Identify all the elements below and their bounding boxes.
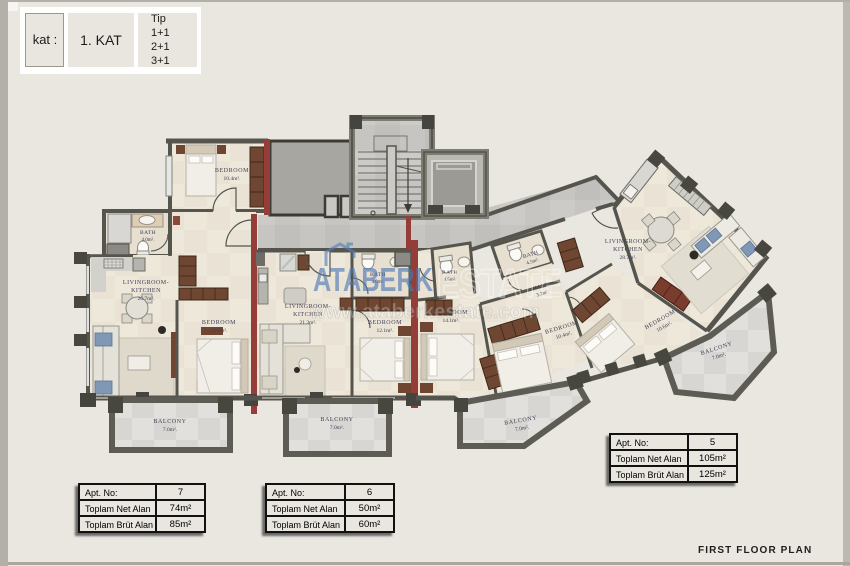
svg-text:BEDROOM: BEDROOM: [215, 168, 249, 174]
svg-text:26.7m².: 26.7m².: [138, 296, 156, 302]
svg-text:www.ataberkestate.com: www.ataberkestate.com: [309, 301, 540, 323]
svg-text:BATH: BATH: [140, 230, 156, 236]
svg-text:ATABERK: ATABERK: [313, 261, 433, 298]
svg-text:BALCONY: BALCONY: [320, 417, 353, 423]
svg-text:4.0m².: 4.0m².: [142, 237, 155, 243]
svg-text:KITCHEN: KITCHEN: [613, 247, 643, 253]
svg-text:BEDROOM: BEDROOM: [202, 320, 236, 326]
svg-text:ESTATE: ESTATE: [437, 262, 562, 306]
svg-text:10.4m².: 10.4m².: [224, 176, 242, 182]
svg-text:KITCHEN: KITCHEN: [131, 288, 161, 294]
svg-text:BALCONY: BALCONY: [153, 419, 186, 425]
svg-text:12.1m².: 12.1m².: [377, 328, 395, 334]
svg-text:LIVINGROOM-: LIVINGROOM-: [605, 239, 651, 245]
svg-text:7.0m².: 7.0m².: [330, 425, 345, 431]
svg-text:LIVINGROOM-: LIVINGROOM-: [123, 280, 169, 286]
svg-text:12.6m².: 12.6m².: [211, 328, 229, 334]
svg-text:28.7m².: 28.7m².: [620, 255, 638, 261]
svg-text:7.0m².: 7.0m².: [163, 427, 178, 433]
